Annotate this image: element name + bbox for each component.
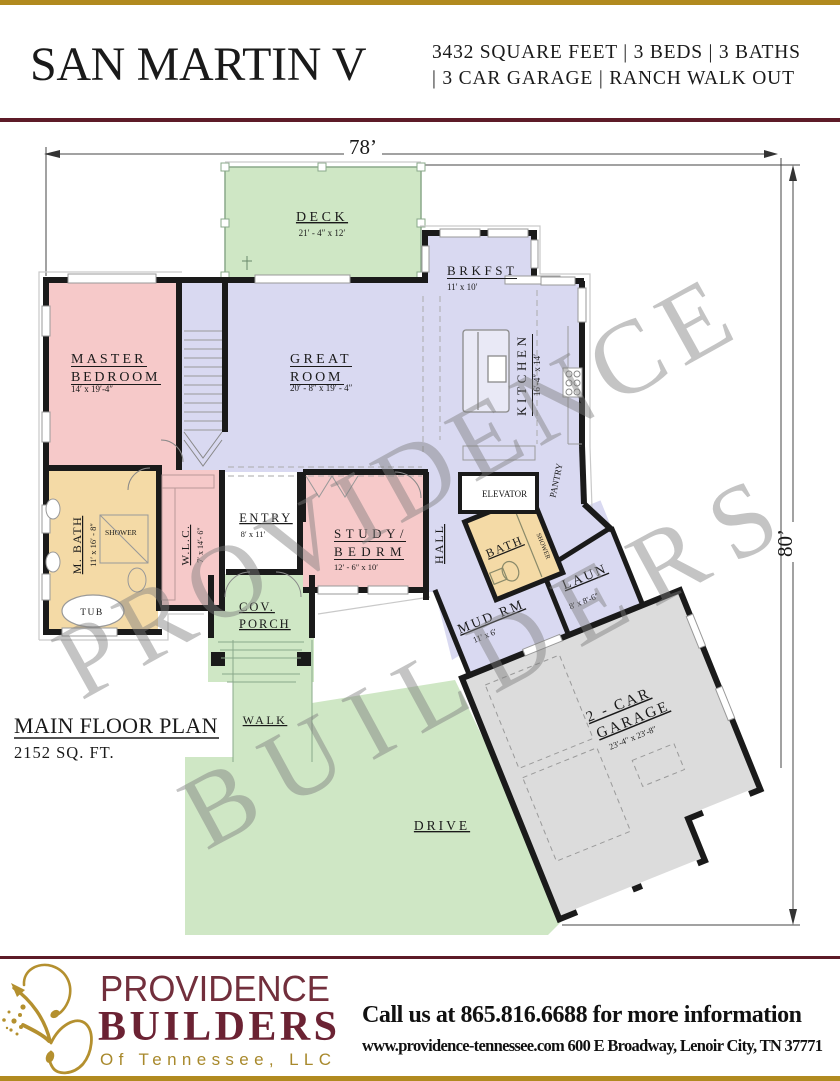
- svg-text:2152 SQ. FT.: 2152 SQ. FT.: [14, 743, 115, 762]
- svg-text:3432 SQUARE FEET | 3 BEDS | 3: 3432 SQUARE FEET | 3 BEDS | 3 BATHS: [432, 42, 800, 63]
- svg-text:78’: 78’: [349, 135, 377, 159]
- svg-text:BUILDERS: BUILDERS: [98, 1004, 337, 1050]
- svg-text:DRIVE: DRIVE: [414, 818, 470, 833]
- svg-text:21′ - 4″ x 12′: 21′ - 4″ x 12′: [299, 228, 346, 238]
- svg-text:BEDROOM: BEDROOM: [71, 370, 161, 385]
- svg-text:11′ x 10′: 11′ x 10′: [447, 282, 478, 292]
- svg-text:www.providence-tennessee.com 6: www.providence-tennessee.com 600 E Broad…: [362, 1036, 823, 1055]
- svg-text:GREAT: GREAT: [290, 352, 352, 367]
- svg-text:MAIN FLOOR PLAN: MAIN FLOOR PLAN: [14, 713, 219, 738]
- svg-text:BRKFST: BRKFST: [447, 263, 517, 278]
- svg-text:SAN MARTIN V: SAN MARTIN V: [30, 38, 367, 91]
- svg-text:PROVIDENCE: PROVIDENCE: [100, 968, 330, 1009]
- svg-text:Of Tennessee, LLC: Of Tennessee, LLC: [100, 1050, 333, 1069]
- svg-text:| 3 CAR GARAGE | RANCH WALK OU: | 3 CAR GARAGE | RANCH WALK OUT: [432, 68, 794, 89]
- svg-text:M. BATH: M. BATH: [70, 516, 84, 575]
- svg-text:DECK: DECK: [296, 210, 348, 225]
- svg-text:MASTER: MASTER: [71, 352, 147, 367]
- svg-text:SHOWER: SHOWER: [105, 528, 137, 537]
- svg-text:20′ - 8″ x 19′ - 4″: 20′ - 8″ x 19′ - 4″: [290, 383, 353, 393]
- svg-text:11′ x 16′ - 8″: 11′ x 16′ - 8″: [88, 523, 98, 567]
- svg-text:14′ x 19′-4″: 14′ x 19′-4″: [71, 384, 113, 394]
- svg-text:Call us at 865.816.6688 for mo: Call us at 865.816.6688 for more informa…: [362, 1002, 802, 1028]
